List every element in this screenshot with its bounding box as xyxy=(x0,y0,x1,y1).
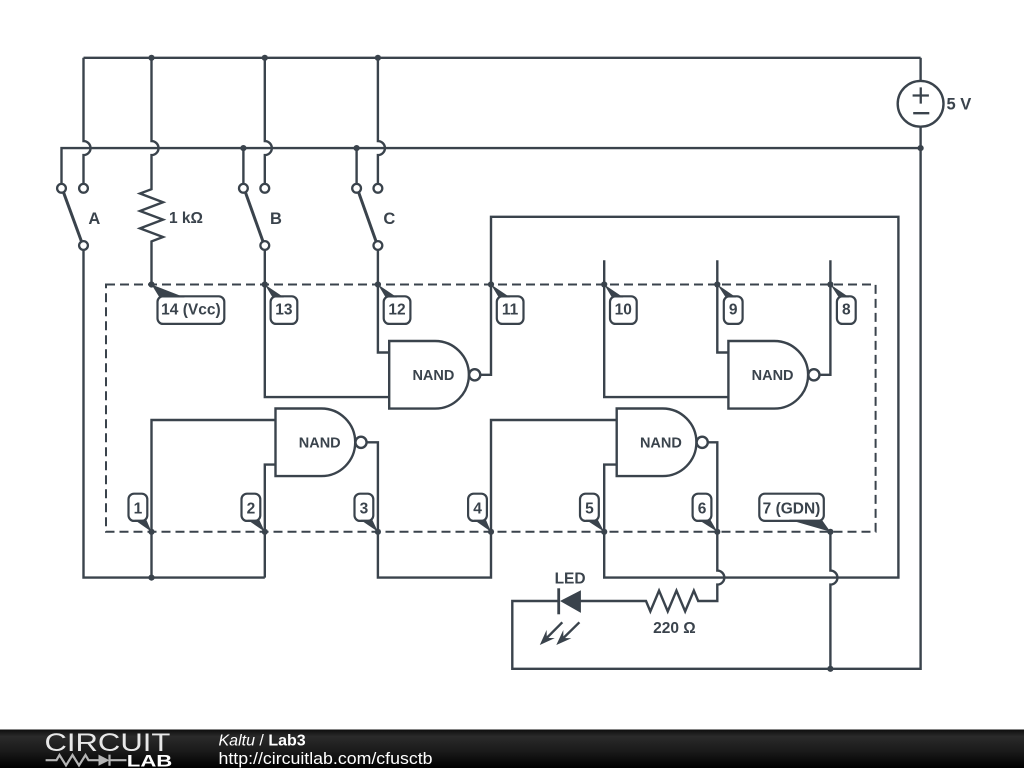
svg-text:4: 4 xyxy=(473,500,482,517)
svg-text:220 Ω: 220 Ω xyxy=(653,620,696,637)
svg-text:13: 13 xyxy=(275,302,293,319)
svg-text:B: B xyxy=(270,210,282,228)
svg-text:7 (GDN): 7 (GDN) xyxy=(763,500,821,517)
svg-text:11: 11 xyxy=(502,302,519,319)
svg-text:A: A xyxy=(88,210,100,228)
svg-text:12: 12 xyxy=(388,302,405,319)
svg-text:LED: LED xyxy=(555,571,586,588)
svg-text:NAND: NAND xyxy=(412,368,454,384)
svg-text:5: 5 xyxy=(585,500,594,517)
svg-text:8: 8 xyxy=(842,302,851,319)
svg-text:1 kΩ: 1 kΩ xyxy=(169,210,203,227)
svg-text:NAND: NAND xyxy=(752,368,794,384)
svg-text:9: 9 xyxy=(729,302,738,319)
svg-text:10: 10 xyxy=(615,302,632,319)
svg-text:LAB: LAB xyxy=(127,752,173,768)
svg-text:1: 1 xyxy=(134,500,143,517)
svg-text:6: 6 xyxy=(698,500,707,517)
svg-text:NAND: NAND xyxy=(640,436,682,452)
svg-text:5 V: 5 V xyxy=(947,95,972,113)
svg-text:http://circuitlab.com/cfusctb: http://circuitlab.com/cfusctb xyxy=(219,749,433,768)
svg-text:3: 3 xyxy=(360,500,369,517)
svg-text:C: C xyxy=(383,210,395,228)
svg-text:NAND: NAND xyxy=(299,436,341,452)
svg-text:14 (Vcc): 14 (Vcc) xyxy=(161,302,220,319)
svg-text:Kaltu / Lab3: Kaltu / Lab3 xyxy=(219,733,306,750)
svg-text:2: 2 xyxy=(247,500,256,517)
